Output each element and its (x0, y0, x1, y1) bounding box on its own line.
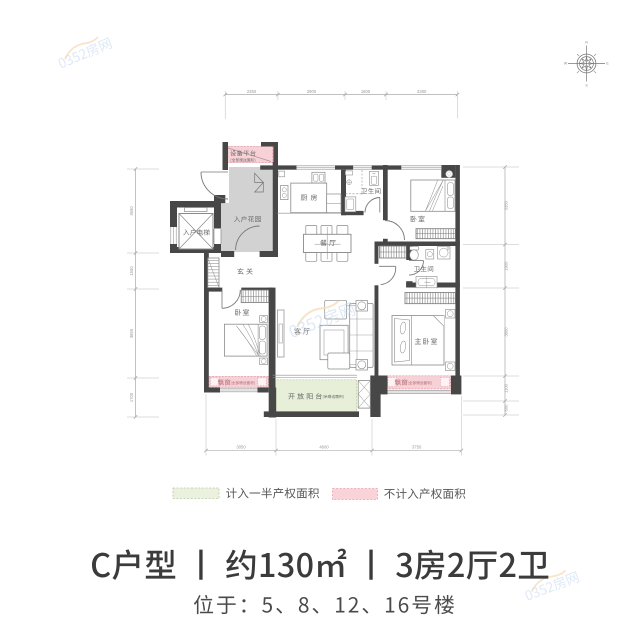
svg-text:2350: 2350 (247, 89, 257, 94)
svg-text:1600: 1600 (361, 89, 371, 94)
svg-text:3750: 3750 (412, 444, 422, 449)
svg-text:3800: 3800 (503, 327, 508, 337)
svg-text:3650: 3650 (129, 206, 134, 216)
svg-text:1550: 1550 (129, 266, 134, 276)
svg-text:2900: 2900 (307, 89, 317, 94)
svg-text:1700: 1700 (129, 392, 134, 402)
svg-text:1100: 1100 (503, 383, 508, 393)
svg-text:3350: 3350 (503, 200, 508, 210)
svg-text:4600: 4600 (319, 444, 329, 449)
svg-text:3050: 3050 (236, 444, 246, 449)
svg-text:1900: 1900 (503, 261, 508, 271)
svg-text:600: 600 (503, 404, 508, 412)
svg-text:3850: 3850 (129, 328, 134, 338)
svg-text:3300: 3300 (417, 89, 427, 94)
